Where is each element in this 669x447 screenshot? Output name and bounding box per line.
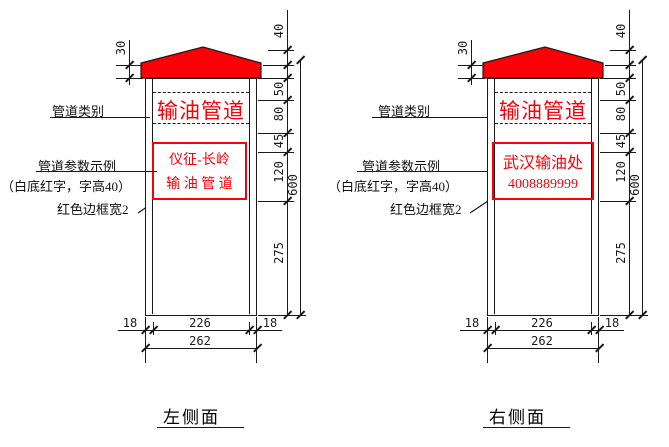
right-red-cap-shape — [483, 47, 603, 78]
left-dim-120: 120 — [272, 157, 286, 187]
left-dim-226: 226 — [185, 316, 215, 330]
right-param-label: 管道参数示例 — [362, 156, 440, 175]
right-param-note: （白底红字，字高40） — [328, 176, 458, 195]
right-dim-80: 80 — [614, 99, 628, 129]
left-panel-line2: 输 油 管 道 — [166, 173, 233, 193]
right-category-dash-top — [495, 92, 591, 93]
left-ext-peak — [268, 50, 294, 51]
left-category-dash-top — [153, 92, 249, 93]
left-bottom-ext-left — [145, 317, 146, 363]
left-parameter-panel: 仪征-长岭 输 油 管 道 — [152, 142, 247, 200]
left-dim-cap-band: 30 — [114, 33, 128, 63]
right-dim-18-left: 18 — [457, 316, 487, 330]
right-chain-dim-line — [629, 10, 630, 315]
left-border-note: 红色边框宽2 — [57, 199, 129, 218]
left-dim-275: 275 — [272, 238, 286, 268]
right-parameter-panel: 武汉输油处 4008889999 — [492, 142, 594, 200]
left-category-text: 输油管道 — [152, 95, 250, 125]
left-dim-40: 40 — [272, 16, 286, 46]
left-width-dim-line2 — [145, 348, 257, 349]
left-chain-dim-line — [287, 10, 288, 315]
left-total-dim-line — [300, 60, 301, 315]
left-red-cap-shape — [141, 47, 261, 78]
left-panel-line1: 仪征-长岭 — [169, 149, 230, 169]
right-width-dim-line2 — [487, 348, 599, 349]
right-category-leader — [372, 117, 487, 118]
right-total-dim-line — [642, 60, 643, 315]
drawing-canvas: 输油管道 仪征-长岭 输 油 管 道 管道类别 管道参数示例 （白底红字，字高4… — [0, 0, 669, 447]
left-param-leader — [36, 171, 157, 172]
left-ext-4 — [258, 201, 294, 202]
right-dim-18-right: 18 — [597, 316, 627, 330]
right-category-text: 输油管道 — [494, 95, 592, 125]
right-ext-peak — [610, 50, 636, 51]
left-view-title: 左侧面 — [163, 403, 220, 428]
right-view-title-underline — [483, 427, 570, 428]
left-param-label: 管道参数示例 — [38, 156, 116, 175]
right-dim-275: 275 — [614, 238, 628, 268]
left-ext-band-top — [263, 65, 294, 66]
right-dim-40: 40 — [614, 16, 628, 46]
right-dim-cap-band: 30 — [456, 33, 470, 63]
left-category-leader — [50, 117, 150, 118]
right-panel-line1: 武汉输油处 — [503, 149, 583, 173]
right-ext-band-top — [605, 65, 636, 66]
right-view-title: 右侧面 — [489, 403, 546, 428]
left-dim-45: 45 — [272, 126, 286, 156]
right-panel-line2: 4008889999 — [508, 177, 578, 193]
left-dim-80: 80 — [272, 99, 286, 129]
right-bottom-ext-left — [487, 317, 488, 363]
left-dim-262: 262 — [185, 334, 215, 348]
left-view-title-underline — [157, 427, 244, 428]
right-dim-120: 120 — [614, 157, 628, 187]
right-dim-600: 600 — [628, 170, 642, 200]
left-param-note: （白底红字，字高40） — [1, 176, 131, 195]
right-ext-4 — [600, 201, 636, 202]
right-dim-45: 45 — [614, 126, 628, 156]
left-dim-18-left: 18 — [115, 316, 145, 330]
left-dim-18-right: 18 — [255, 316, 285, 330]
right-dim-262: 262 — [527, 334, 557, 348]
right-border-note: 红色边框宽2 — [390, 199, 462, 218]
right-param-leader — [357, 171, 487, 172]
right-dim-226: 226 — [527, 316, 557, 330]
left-dim-600: 600 — [286, 170, 300, 200]
